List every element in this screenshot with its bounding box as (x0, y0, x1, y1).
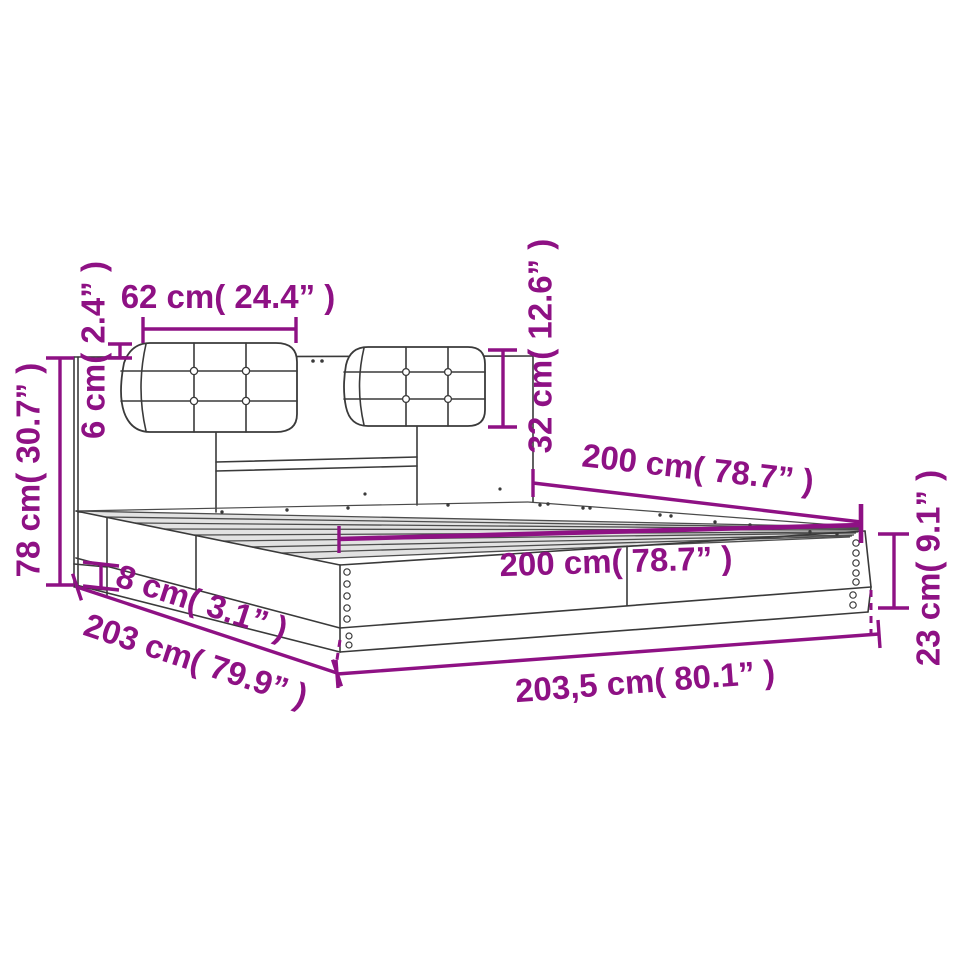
bed-dimension-diagram: 62 cm( 24.4” ) 6 cm( 2.4” ) 78 cm( 30.7”… (0, 0, 955, 955)
dim-headboard-height: 78 cm( 30.7” ) (10, 358, 75, 585)
dim-cushion-height: 32 cm( 12.6” ) (488, 239, 559, 454)
dim-label-inner-length-upper: 200 cm( 78.7” ) (580, 436, 816, 499)
dim-label-inner-length-lower: 200 cm( 78.7” ) (499, 539, 733, 583)
dim-label-frame-height: 23 cm( 9.1” ) (910, 470, 947, 666)
dim-frame-height: 23 cm( 9.1” ) (871, 470, 947, 666)
dim-label-headboard-height: 78 cm( 30.7” ) (10, 363, 47, 578)
headboard-cushion-right (344, 347, 485, 426)
headboard-cushion-left (121, 343, 297, 432)
dim-label-headboard-gap: 6 cm( 2.4” ) (75, 261, 112, 439)
dim-cushion-width: 62 cm( 24.4” ) (121, 278, 336, 343)
dimension-annotations: 62 cm( 24.4” ) 6 cm( 2.4” ) 78 cm( 30.7”… (10, 239, 947, 714)
dim-label-cushion-width: 62 cm( 24.4” ) (121, 278, 336, 315)
dim-total-length: 203,5 cm( 80.1” ) (336, 620, 880, 709)
dim-label-total-length: 203,5 cm( 80.1” ) (514, 653, 777, 709)
slat-deck (76, 502, 862, 559)
diagram-canvas: 62 cm( 24.4” ) 6 cm( 2.4” ) 78 cm( 30.7”… (0, 0, 955, 955)
dim-label-cushion-height: 32 cm( 12.6” ) (522, 239, 559, 454)
